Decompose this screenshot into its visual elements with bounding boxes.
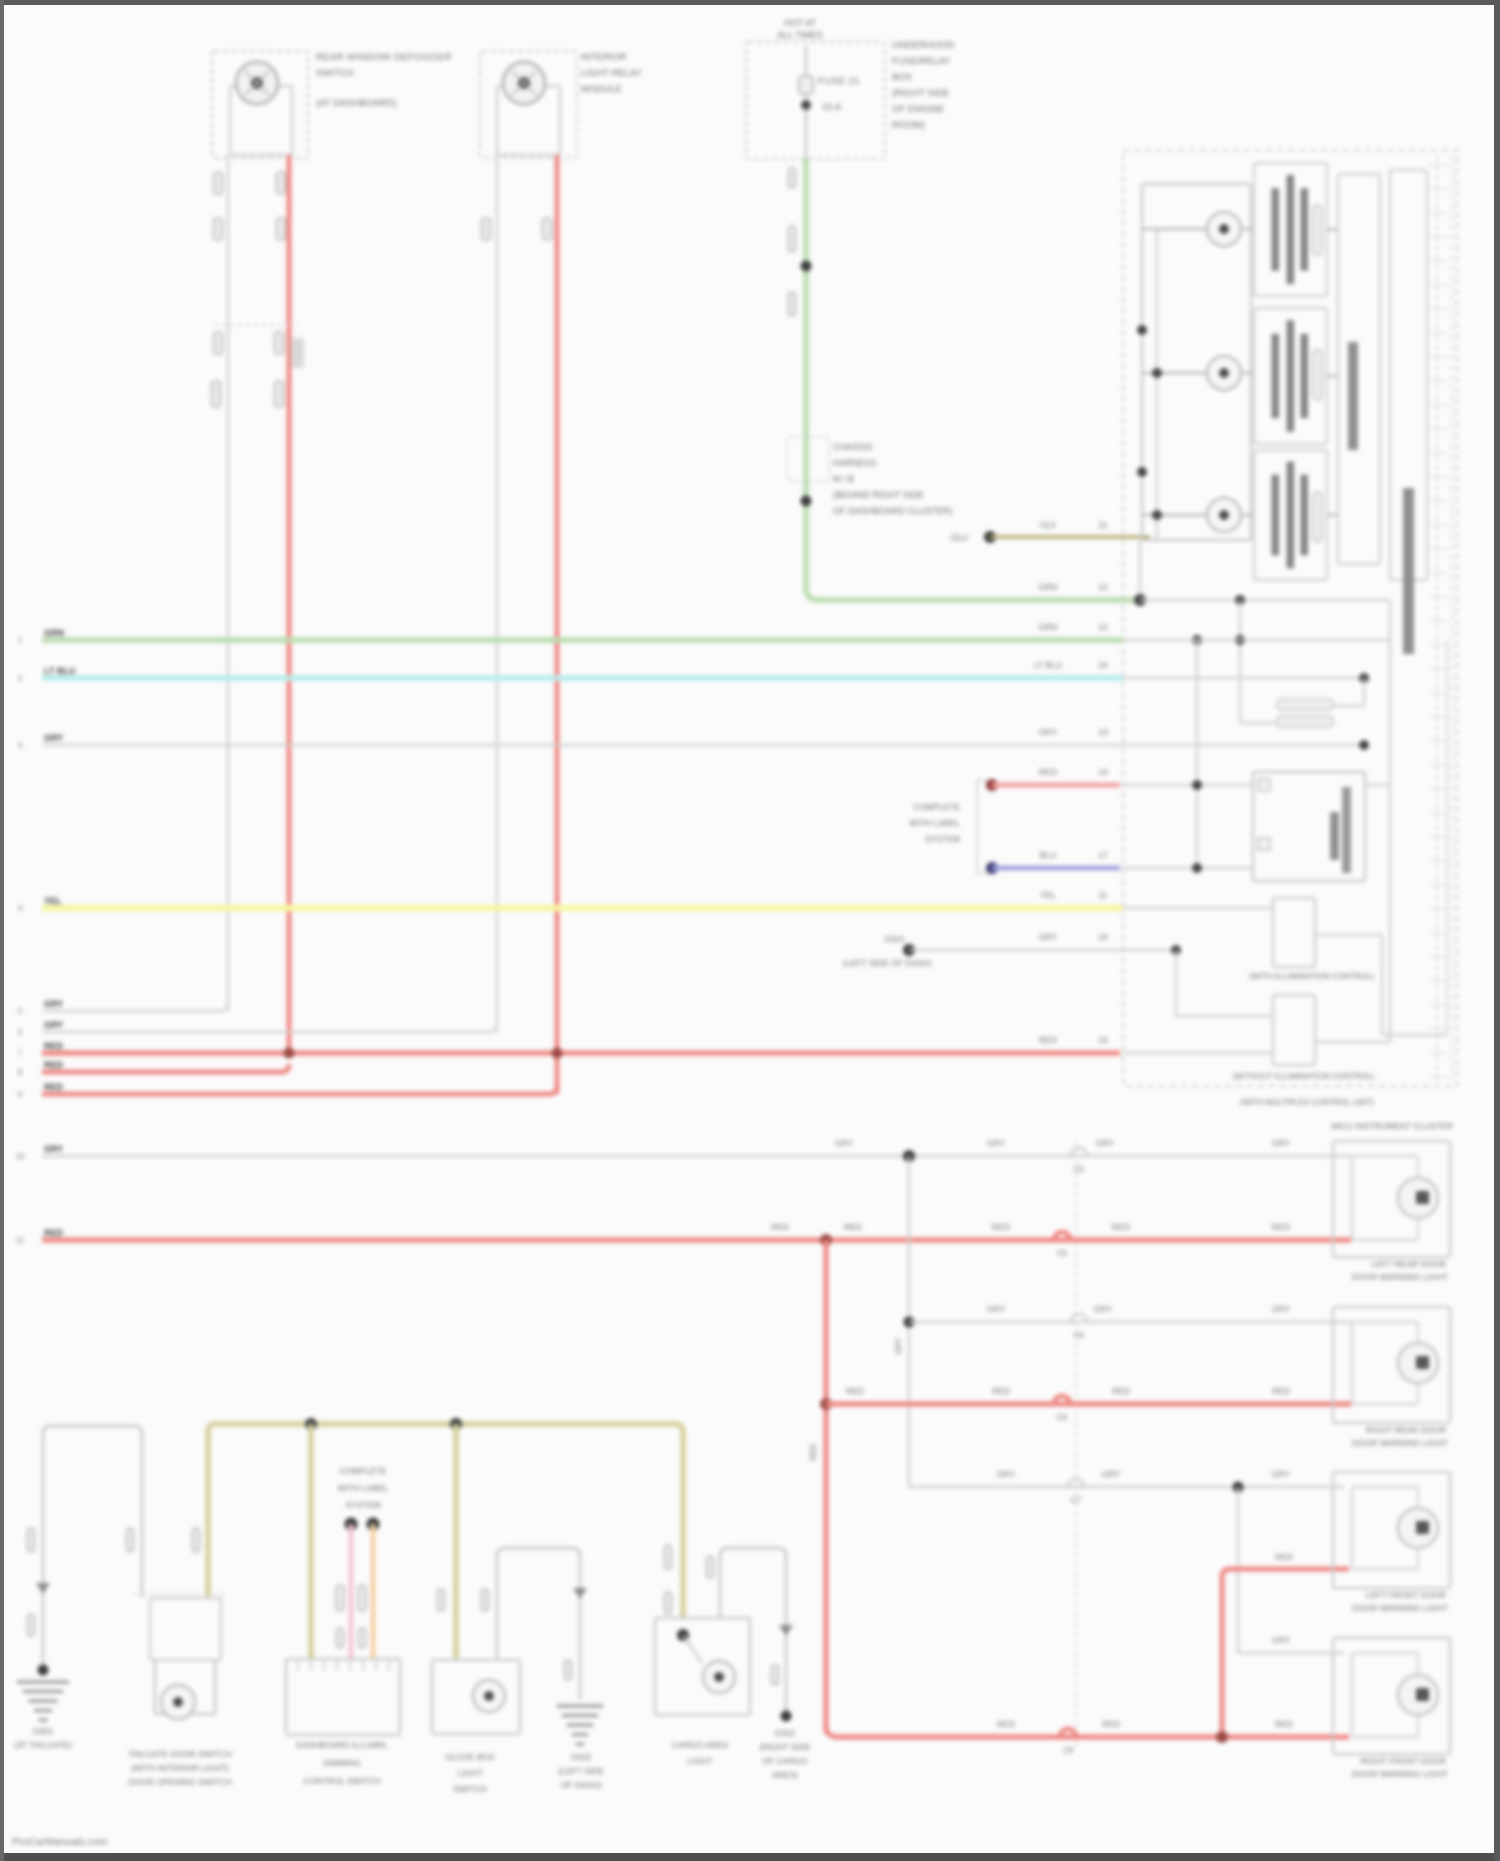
svg-text:GRY: GRY [987,1304,1006,1314]
svg-text:RIGHT REAR DOOR: RIGHT REAR DOOR [1366,1425,1446,1435]
svg-text:3: 3 [18,741,23,750]
svg-text:7: 7 [18,1049,23,1058]
svg-text:GRY: GRY [44,999,63,1009]
svg-text:GRY: GRY [894,1337,903,1355]
svg-text:RED: RED [44,1060,64,1070]
svg-text:2: 2 [18,674,23,683]
svg-text:BOX: BOX [892,72,913,83]
svg-text:GRY: GRY [44,1144,63,1154]
svg-text:SYSTEM: SYSTEM [346,1500,381,1510]
svg-text:LIGHT: LIGHT [687,1756,712,1766]
svg-text:4: 4 [18,904,23,913]
svg-text:RED: RED [44,1041,64,1051]
svg-text:19: 19 [1098,932,1108,942]
svg-text:(WITH MULTIPLEX CONTROL UNIT): (WITH MULTIPLEX CONTROL UNIT) [1240,1098,1374,1107]
svg-text:OF ENGINE: OF ENGINE [892,104,944,115]
svg-text:ProCarManuals.com: ProCarManuals.com [12,1836,108,1848]
svg-text:15: 15 [1098,1035,1108,1045]
svg-text:RED: RED [1039,1035,1057,1045]
svg-text:CARGO AREA: CARGO AREA [672,1740,729,1750]
svg-text:WITH LABEL: WITH LABEL [909,818,960,828]
svg-text:(AT TAILGATE): (AT TAILGATE) [14,1740,72,1750]
svg-text:LT BLU: LT BLU [1034,660,1062,670]
svg-text:LIGHT: LIGHT [457,1768,482,1778]
svg-text:16: 16 [1098,660,1108,670]
svg-text:RED: RED [992,1386,1010,1396]
svg-text:GRY: GRY [1272,1138,1291,1148]
svg-text:RED: RED [997,1719,1015,1729]
svg-text:GRY: GRY [44,1020,63,1030]
svg-text:GLOVE BOX: GLOVE BOX [445,1752,495,1762]
svg-text:DOOR OPENING SWITCH: DOOR OPENING SWITCH [129,1777,232,1787]
svg-text:RED: RED [1272,1386,1290,1396]
svg-text:GRN: GRN [1039,622,1058,632]
svg-text:11: 11 [1099,890,1108,900]
svg-text:GRY: GRY [1096,1138,1115,1148]
svg-text:OF CARGO: OF CARGO [762,1756,808,1766]
svg-text:GRY: GRY [1272,1469,1291,1479]
svg-text:YEL: YEL [1040,890,1056,900]
svg-text:RED: RED [44,1228,64,1238]
svg-text:HARNESS: HARNESS [833,458,877,468]
svg-text:GRY: GRY [835,1138,854,1148]
svg-text:SWITCH: SWITCH [453,1784,487,1794]
svg-text:GRN: GRN [1039,582,1058,592]
svg-text:GRY: GRY [1272,1304,1291,1314]
svg-text:DOOR WARNING LIGHT: DOOR WARNING LIGHT [1352,1438,1448,1448]
svg-text:SWITCH: SWITCH [316,68,354,79]
svg-text:MICU INSTRUMENT CLUSTER: MICU INSTRUMENT CLUSTER [1331,1121,1453,1131]
svg-text:WITH LABEL: WITH LABEL [338,1483,389,1493]
svg-text:CHASSIS: CHASSIS [833,442,873,452]
svg-text:C6: C6 [1074,1331,1085,1340]
svg-text:YEL: YEL [44,896,62,906]
svg-text:G502: G502 [571,1752,592,1762]
svg-text:CONTROL SWITCH: CONTROL SWITCH [303,1776,380,1786]
svg-text:21: 21 [1098,520,1108,530]
svg-text:13: 13 [1098,727,1108,737]
svg-text:RED: RED [844,1222,862,1232]
svg-text:UNDERHOOD: UNDERHOOD [892,40,954,51]
svg-text:5: 5 [18,1007,23,1016]
svg-text:ROOM): ROOM) [892,120,925,131]
svg-text:10: 10 [16,1152,25,1161]
svg-text:RED: RED [44,1082,64,1092]
svg-text:(BEHIND RIGHT SIDE: (BEHIND RIGHT SIDE [833,490,924,500]
svg-text:G552: G552 [775,1728,796,1738]
svg-text:RED: RED [992,1222,1010,1232]
svg-text:RED: RED [846,1386,864,1396]
svg-text:14: 14 [1098,767,1108,777]
svg-text:COMPLETE: COMPLETE [340,1466,387,1476]
svg-text:GRY: GRY [1102,1469,1121,1479]
svg-text:MODULE: MODULE [581,84,622,95]
svg-text:GRY: GRY [987,1138,1006,1148]
svg-text:15 A: 15 A [822,102,842,113]
svg-text:6: 6 [18,1028,23,1037]
svg-text:DIMMING: DIMMING [323,1758,361,1768]
svg-text:8: 8 [18,1068,23,1077]
svg-text:OLV: OLV [951,533,968,543]
svg-text:RED: RED [1272,1222,1290,1232]
svg-text:DOOR WARNING LIGHT: DOOR WARNING LIGHT [1352,1272,1448,1282]
svg-text:AREA): AREA) [772,1770,798,1780]
svg-text:(AT DASHBOARD): (AT DASHBOARD) [316,98,396,109]
svg-text:12: 12 [1098,582,1108,592]
svg-text:G501: G501 [884,934,905,944]
svg-text:C6: C6 [1057,1413,1068,1422]
svg-text:(RIGHT SIDE: (RIGHT SIDE [892,88,949,99]
svg-text:GRY: GRY [1272,1635,1291,1645]
svg-text:RED: RED [1039,767,1057,777]
svg-text:OF DASH): OF DASH) [561,1780,602,1790]
svg-text:12: 12 [1098,622,1108,632]
svg-text:C8: C8 [1063,1746,1074,1755]
svg-text:DOOR WARNING LIGHT: DOOR WARNING LIGHT [1352,1769,1448,1779]
svg-text:GRY: GRY [1039,932,1058,942]
svg-text:1: 1 [18,636,23,645]
svg-text:(LEFT SIDE OF DASH): (LEFT SIDE OF DASH) [843,958,932,968]
svg-text:17: 17 [1098,850,1108,860]
svg-text:ALL TIMES: ALL TIMES [777,30,823,40]
svg-text:C5: C5 [1074,1165,1085,1174]
svg-text:(WITH INTERIOR LIGHT): (WITH INTERIOR LIGHT) [131,1763,229,1773]
svg-text:LIGHT RELAY: LIGHT RELAY [581,68,643,79]
svg-text:HOT AT: HOT AT [784,18,816,28]
svg-text:GRY: GRY [44,733,63,743]
svg-text:(RIGHT SIDE: (RIGHT SIDE [759,1742,811,1752]
svg-text:G601: G601 [33,1726,54,1736]
svg-text:9: 9 [18,1090,23,1099]
svg-text:BLU: BLU [1040,850,1057,860]
svg-text:OF DASHBOARD CLUSTER): OF DASHBOARD CLUSTER) [833,506,953,516]
svg-text:RED: RED [1112,1386,1130,1396]
svg-text:RED: RED [1275,1552,1293,1562]
svg-text:DOOR WARNING LIGHT: DOOR WARNING LIGHT [1352,1603,1448,1613]
svg-text:RED: RED [1102,1719,1120,1729]
svg-text:COMPLETE: COMPLETE [913,802,960,812]
svg-text:TAILGATE DOOR SWITCH: TAILGATE DOOR SWITCH [128,1749,232,1759]
svg-text:GRY: GRY [1094,1304,1113,1314]
svg-text:FUSE/RELAY: FUSE/RELAY [892,56,951,67]
svg-text:FUSE 21: FUSE 21 [818,76,860,87]
svg-text:C5: C5 [1057,1249,1068,1258]
svg-text:GRY: GRY [1039,727,1058,737]
svg-text:OLV: OLV [1040,520,1057,530]
svg-text:M / B: M / B [833,474,854,484]
svg-text:(WITH ILLUMINATION CONTROL): (WITH ILLUMINATION CONTROL) [1249,972,1374,981]
svg-text:GRY: GRY [997,1469,1016,1479]
svg-text:INTERIOR: INTERIOR [581,52,627,63]
svg-text:LT BLU: LT BLU [44,666,75,676]
svg-text:(WITHOUT ILLUMINATION CONTROL): (WITHOUT ILLUMINATION CONTROL) [1233,1072,1375,1081]
svg-text:SYSTEM: SYSTEM [925,834,960,844]
svg-text:RED: RED [809,1443,818,1460]
svg-text:REAR WINDOW DEFOGGER: REAR WINDOW DEFOGGER [316,52,452,63]
svg-text:11: 11 [16,1236,25,1245]
svg-text:LEFT REAR DOOR: LEFT REAR DOOR [1372,1259,1446,1269]
svg-text:(LEFT SIDE: (LEFT SIDE [558,1766,604,1776]
svg-text:RIGHT FRONT DOOR: RIGHT FRONT DOOR [1360,1756,1446,1766]
svg-text:RED: RED [771,1222,789,1232]
svg-text:C7: C7 [1071,1496,1082,1505]
svg-text:RED: RED [1275,1719,1293,1729]
svg-text:DASHBOARD ILLUMIN.: DASHBOARD ILLUMIN. [296,1740,388,1750]
svg-text:RED: RED [1112,1222,1130,1232]
svg-text:GRN: GRN [44,628,64,638]
svg-text:LEFT FRONT DOOR: LEFT FRONT DOOR [1366,1590,1446,1600]
